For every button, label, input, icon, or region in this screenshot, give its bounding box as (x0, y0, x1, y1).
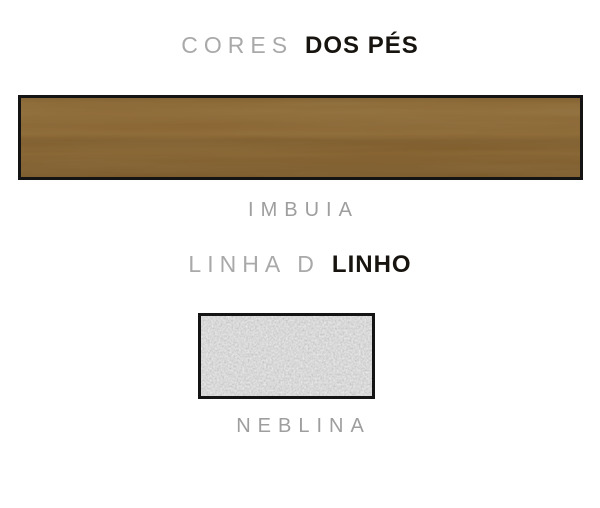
fabric-line-heading: LINHA D LINHO (0, 251, 600, 279)
feet-colors-heading: CORES DOS PÉS (0, 32, 600, 60)
heading-bold-text: DOS PÉS (305, 32, 419, 60)
fabric-texture-image (201, 316, 372, 396)
fabric-color-swatch (198, 313, 375, 399)
wood-swatch-label: IMBUIA (0, 199, 600, 222)
fabric-swatch-label: NEBLINA (0, 415, 600, 438)
wood-color-swatch (18, 95, 583, 180)
wood-texture-image (21, 98, 580, 177)
heading-light-text: CORES (181, 32, 293, 59)
color-options-panel: CORES DOS PÉS (0, 0, 600, 508)
heading-bold-text: LINHO (332, 251, 412, 279)
heading-light-text: LINHA D (188, 251, 319, 278)
